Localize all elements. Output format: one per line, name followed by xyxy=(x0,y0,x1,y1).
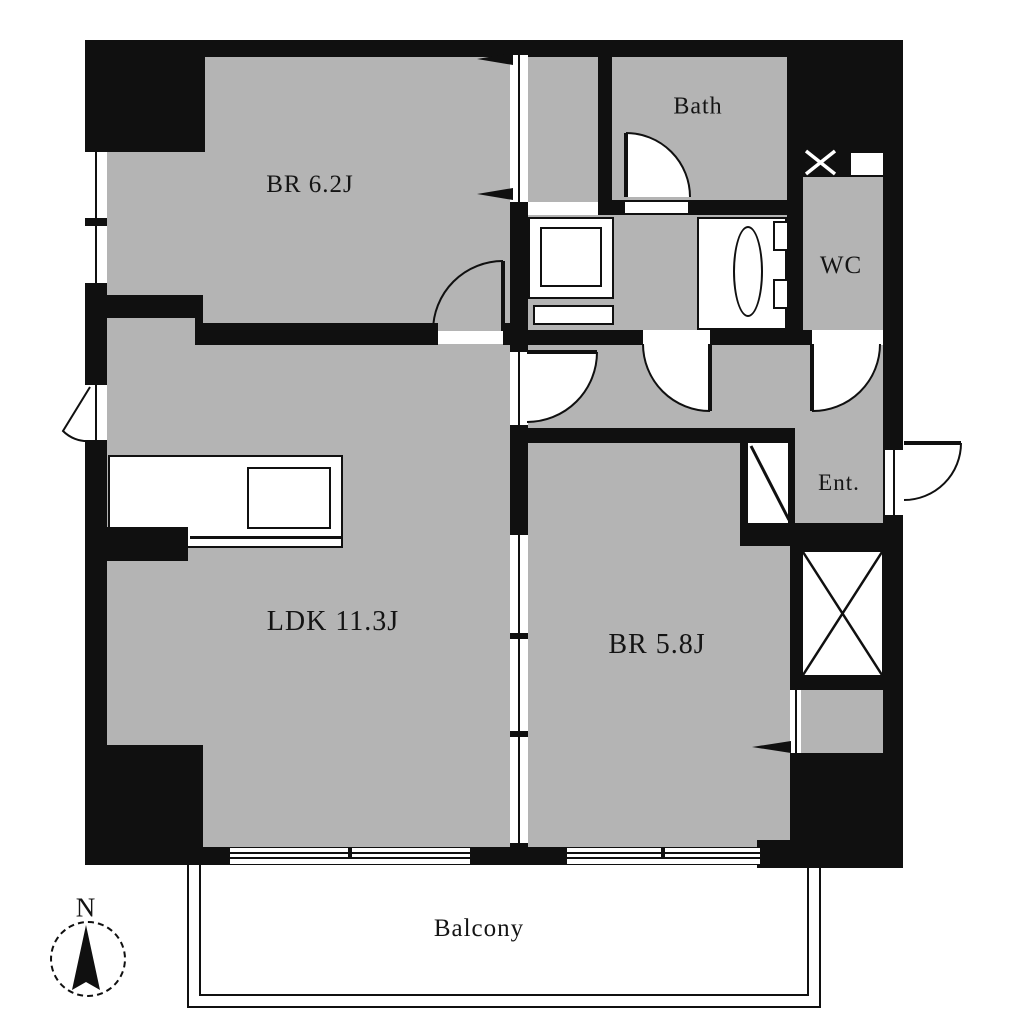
label-entrance: Ent. xyxy=(818,470,860,496)
label-balcony: Balcony xyxy=(434,915,524,943)
door-swing xyxy=(527,352,597,422)
label-bedroom2: BR 5.8J xyxy=(608,629,705,661)
floorplan-symbols xyxy=(0,0,1024,1024)
door-leaf-diagonal xyxy=(751,446,789,520)
door-swing xyxy=(626,133,690,197)
vent-x-icon xyxy=(806,151,835,174)
door-swing xyxy=(812,344,880,411)
door-swing xyxy=(643,344,710,411)
arrow-icon xyxy=(477,188,513,200)
label-wc: WC xyxy=(820,252,862,280)
label-ldk: LDK 11.3J xyxy=(267,606,399,638)
label-bath: Bath xyxy=(673,94,722,121)
label-bedroom1: BR 6.2J xyxy=(266,171,354,199)
label-compass-north: N xyxy=(76,893,97,924)
door-arc xyxy=(433,261,503,331)
arrow-icon xyxy=(477,53,513,65)
shaft-x-icon xyxy=(803,552,882,675)
vent-fan-icon xyxy=(63,387,90,441)
compass-needle-icon xyxy=(72,925,100,990)
arrow-icon xyxy=(752,741,791,753)
floorplan-canvas: BR 6.2J Bath WC Ent. LDK 11.3J BR 5.8J B… xyxy=(0,0,1024,1024)
